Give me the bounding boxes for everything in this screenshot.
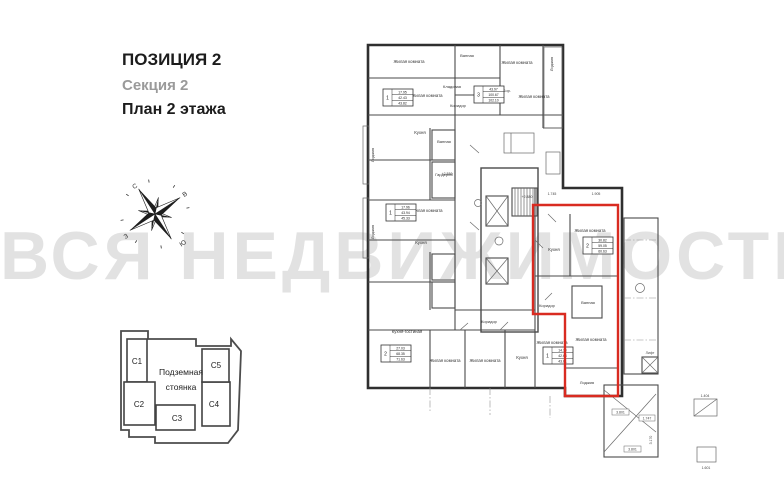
room-label: Жилая комната [429, 358, 461, 363]
room-label: Лоджия [370, 148, 375, 162]
minimap-label-c2: С2 [134, 400, 145, 409]
room-label: Лоджия [549, 57, 554, 71]
room-label: Жилая комната [411, 93, 443, 98]
room-label: Жилая комната [574, 228, 606, 233]
room-label: Кухня [414, 130, 426, 135]
room-label: Жилая комната [575, 337, 607, 342]
apartment-stat-box: 1 14.10 42.64 43.61 [543, 347, 573, 364]
drawing-canvas: С В З Ю С1 С2 С3 С4 С5 Подземная стоянка [0, 0, 784, 500]
svg-text:43.97: 43.97 [489, 87, 498, 91]
minimap-label-c4: С4 [209, 400, 220, 409]
bathroom-cell [432, 130, 455, 160]
table-icon [546, 152, 560, 174]
svg-text:2: 2 [586, 244, 589, 250]
room-label: Ванная [437, 139, 451, 144]
svg-text:43.94: 43.94 [401, 211, 410, 215]
parking-label-line2: стоянка [166, 382, 197, 392]
svg-text:43.82: 43.82 [398, 102, 407, 106]
dimension-label: 3.801 [616, 411, 625, 415]
axis-marker [636, 284, 645, 293]
svg-text:27.03: 27.03 [396, 346, 405, 350]
site-detail-boxes: 1.404 1.601 [694, 394, 717, 470]
minimap: С1 С2 С3 С4 С5 Подземная стоянка [121, 331, 241, 443]
svg-text:17.95: 17.95 [398, 90, 407, 94]
storage-cell [432, 282, 455, 308]
svg-text:60.63: 60.63 [598, 250, 607, 254]
svg-text:2: 2 [384, 352, 387, 358]
floor-plan: Лифт 3.801 1.747 3.801 3.170 1.404 1.601… [363, 45, 717, 470]
svg-text:45.33: 45.33 [401, 217, 410, 221]
room-label: Лоджия [580, 380, 594, 385]
svg-text:68.35: 68.35 [396, 352, 405, 356]
dimension-label: 1.404 [701, 394, 710, 398]
apartment-stat-box: 1 17.95 42.43 43.82 [383, 89, 413, 106]
room-label: Ванная [460, 53, 474, 58]
axis-stubs [430, 388, 550, 418]
section-subtitle: Секция 2 [122, 77, 226, 94]
svg-text:1: 1 [389, 211, 392, 217]
svg-text:1: 1 [546, 354, 549, 360]
svg-text:102.10: 102.10 [488, 99, 498, 103]
svg-text:59.05: 59.05 [598, 244, 607, 248]
page-title: ПОЗИЦИЯ 2 [122, 50, 226, 70]
title-block: ПОЗИЦИЯ 2 Секция 2 План 2 этажа [122, 50, 226, 119]
room-label: Жилая комната [536, 340, 568, 345]
room-label: Коридор [539, 303, 556, 308]
svg-text:1: 1 [386, 96, 389, 102]
compass-west-label: З [123, 233, 130, 241]
level-mark: +2.880 [522, 195, 533, 199]
apartment-stat-box: 3 43.97 100.67 102.10 [474, 86, 504, 103]
parking-label-line1: Подземная [159, 367, 203, 377]
bed-icon [504, 133, 534, 153]
apartment-stat-box: 1 17.96 43.94 45.33 [386, 204, 416, 221]
compass-rose: С В З Ю [110, 169, 199, 258]
svg-text:71.63: 71.63 [396, 358, 405, 362]
compass-north-label: С [131, 182, 139, 191]
apartment-stat-box: 2 27.03 68.35 71.63 [381, 345, 411, 362]
room-label: Кладовая [443, 84, 461, 89]
minimap-label-c3: С3 [172, 414, 183, 423]
svg-text:42.43: 42.43 [398, 96, 407, 100]
room-label: Лоджия [370, 225, 375, 239]
storage-cell [432, 254, 455, 280]
red-highlight-outline[interactable] [533, 205, 618, 396]
dimension-label: 1.601 [702, 466, 711, 470]
room-label: Кухня-гостиная [392, 329, 423, 334]
wardrobe-cell [432, 162, 455, 198]
floor-label: План 2 этажа [122, 101, 226, 119]
elevator-icon [486, 196, 508, 226]
stair-elevator-core [475, 168, 539, 332]
room-label: Жилая комната [501, 60, 533, 65]
svg-text:30.82: 30.82 [598, 238, 607, 242]
room-label: Кухня [516, 355, 528, 360]
room-label: Ванная [581, 300, 595, 305]
compass-east-label: В [181, 191, 188, 199]
compass-south-label: Ю [179, 239, 189, 249]
dimension-label: 3.170 [649, 436, 653, 445]
elevator-icon [486, 258, 508, 284]
dimension-label: 1.747 [643, 417, 652, 421]
axis-marker [495, 237, 503, 245]
minimap-label-c1: С1 [132, 357, 143, 366]
dimension-label: 1.905 [592, 192, 601, 196]
room-label: Жилая комната [469, 358, 501, 363]
room-label: Коридор [481, 319, 498, 324]
dimension-label: 3.801 [628, 448, 637, 452]
svg-text:17.96: 17.96 [401, 205, 410, 209]
lift-box: Лифт [642, 351, 658, 373]
room-label: Жилая комната [518, 94, 550, 99]
apartment-stat-box-highlighted: 2 30.82 59.05 60.63 [583, 237, 613, 254]
minimap-label-c5: С5 [211, 361, 222, 370]
room-label: Гардероб [435, 172, 453, 177]
room-label: Кухня [548, 247, 560, 252]
svg-text:100.67: 100.67 [488, 93, 498, 97]
room-label: Жилая комната [393, 59, 425, 64]
floor-plan-page: { "header": { "title": "ПОЗИЦИЯ 2", "sub… [0, 0, 784, 500]
room-label: Кухня [415, 240, 427, 245]
svg-text:3: 3 [477, 93, 480, 99]
lift-label: Лифт [646, 351, 655, 355]
dimension-label: 1.745 [548, 192, 557, 196]
room-label: Коридор [450, 103, 467, 108]
